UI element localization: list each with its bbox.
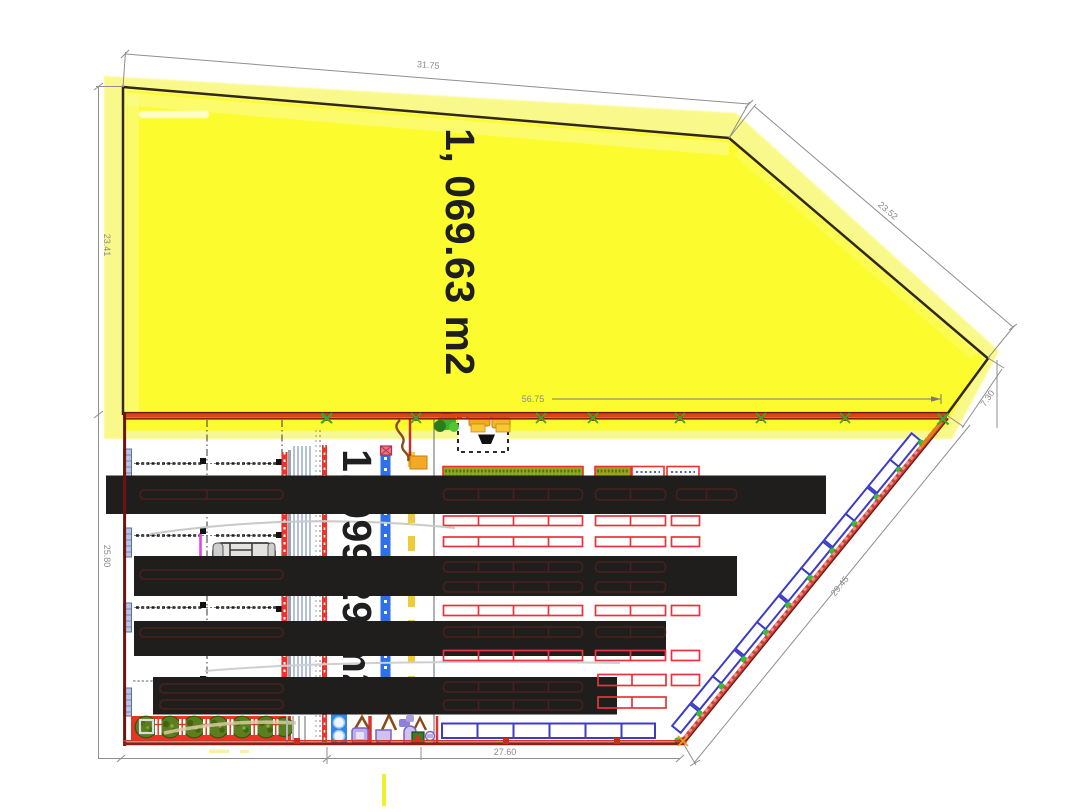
svg-text:25.80: 25.80 — [102, 545, 112, 568]
svg-text:56.75: 56.75 — [522, 394, 545, 404]
svg-text:1, 069.63 m2: 1, 069.63 m2 — [437, 128, 483, 376]
svg-text:27.60: 27.60 — [494, 747, 517, 757]
svg-text:31.75: 31.75 — [417, 59, 440, 71]
svg-text:23.41: 23.41 — [102, 234, 112, 257]
